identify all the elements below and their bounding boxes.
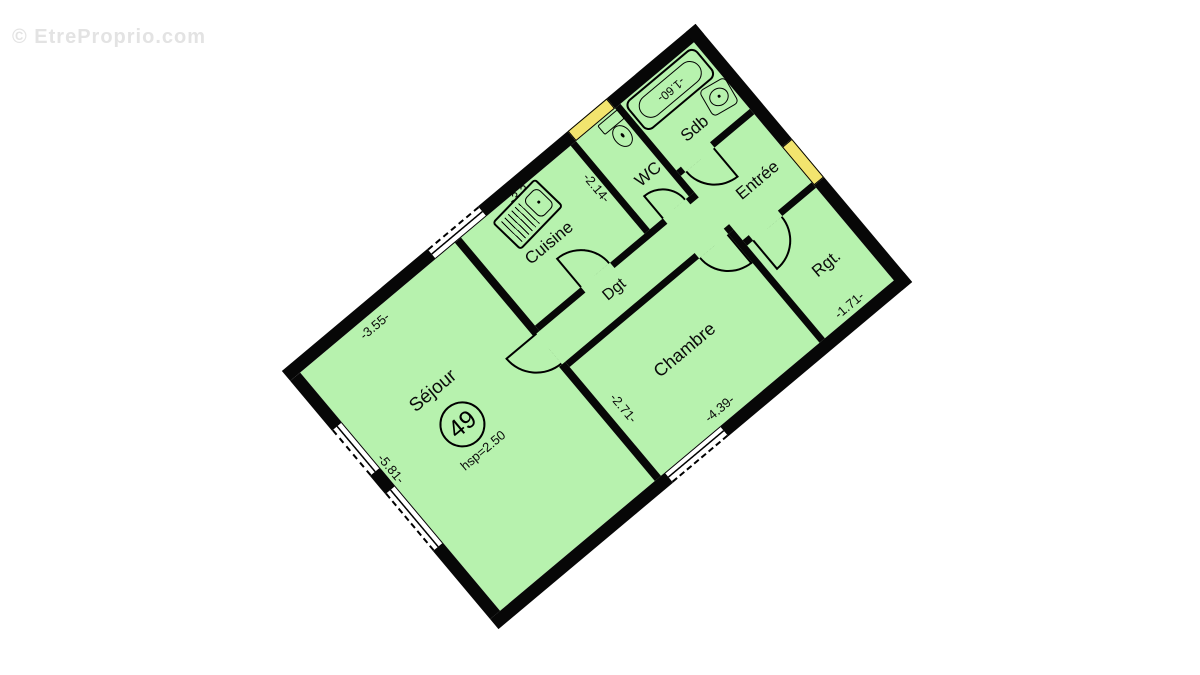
area-value: 49 (442, 404, 482, 444)
apartment-interior (300, 42, 894, 611)
floorplan-image: © EtreProprio.com (0, 0, 1200, 675)
watermark-text: © EtreProprio.com (12, 26, 206, 49)
toilet-drain (620, 132, 626, 138)
floorplan-canvas: -3.55- -3.3- -5.81- -2.14- -2.71- -4.39-… (282, 24, 912, 629)
sink-drain (537, 200, 541, 204)
